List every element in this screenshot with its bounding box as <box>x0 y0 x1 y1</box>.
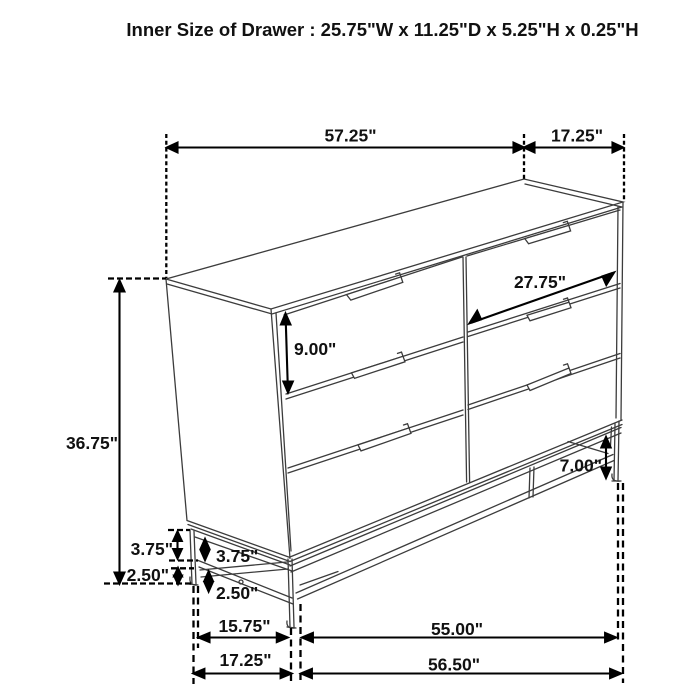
svg-text:Inner Size of Drawer : 25.75"W: Inner Size of Drawer : 25.75"W x 11.25"D… <box>126 19 638 40</box>
svg-text:57.25": 57.25" <box>324 126 376 146</box>
svg-text:17.25": 17.25" <box>551 126 603 146</box>
svg-text:7.00": 7.00" <box>560 456 602 476</box>
svg-text:2.50": 2.50" <box>127 565 169 585</box>
svg-text:15.75": 15.75" <box>218 616 270 636</box>
svg-text:17.25": 17.25" <box>219 650 271 670</box>
svg-text:3.75": 3.75" <box>216 546 258 566</box>
svg-text:3.75": 3.75" <box>131 539 173 559</box>
svg-text:9.00": 9.00" <box>294 339 336 359</box>
svg-text:56.50": 56.50" <box>428 655 480 675</box>
svg-text:55.00": 55.00" <box>431 619 483 639</box>
svg-text:2.50": 2.50" <box>216 583 258 603</box>
svg-text:36.75": 36.75" <box>66 433 118 453</box>
svg-text:27.75": 27.75" <box>514 272 566 292</box>
